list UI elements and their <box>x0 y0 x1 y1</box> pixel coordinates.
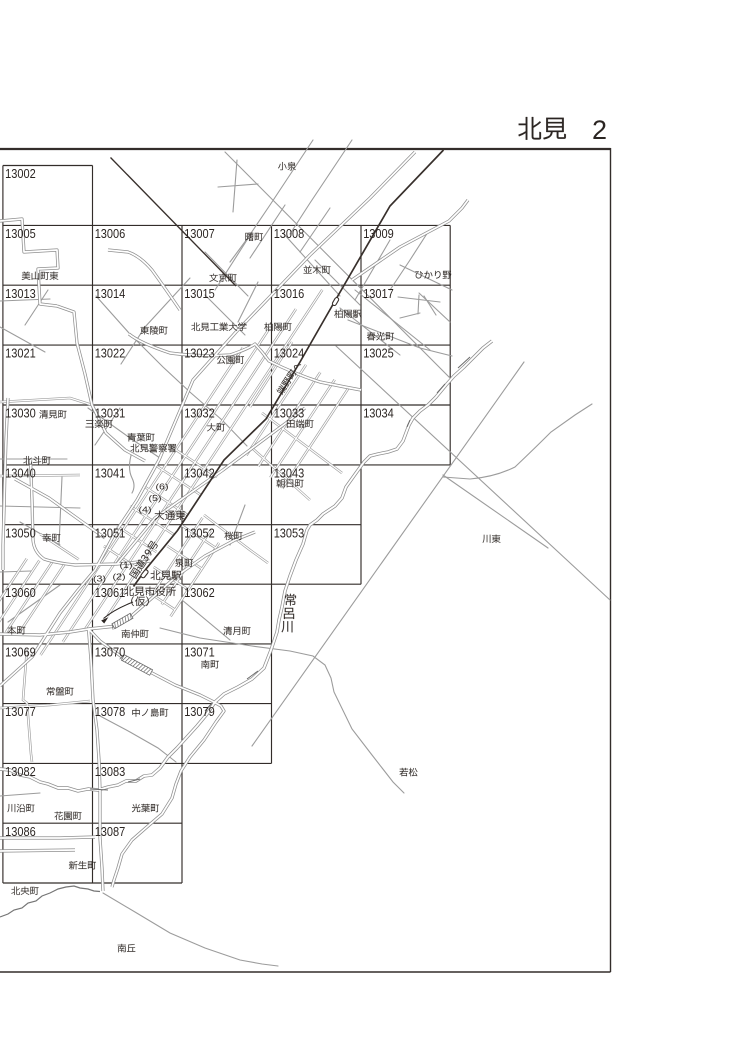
svg-text:13078: 13078 <box>95 704 126 719</box>
svg-text:13069: 13069 <box>5 645 36 660</box>
svg-text:13030: 13030 <box>5 406 36 421</box>
svg-text:13005: 13005 <box>5 226 36 241</box>
svg-text:13007: 13007 <box>184 226 215 241</box>
svg-text:13021: 13021 <box>5 346 36 361</box>
svg-text:13087: 13087 <box>95 824 126 839</box>
svg-text:(4): (4) <box>139 506 152 515</box>
svg-text:13040: 13040 <box>5 466 36 481</box>
svg-text:13034: 13034 <box>363 406 394 421</box>
svg-text:13025: 13025 <box>363 346 394 361</box>
svg-text:13052: 13052 <box>184 525 215 540</box>
svg-text:13070: 13070 <box>95 645 126 660</box>
svg-text:13017: 13017 <box>363 286 394 301</box>
svg-text:13053: 13053 <box>274 525 305 540</box>
svg-text:13023: 13023 <box>184 346 215 361</box>
svg-text:13062: 13062 <box>184 585 215 600</box>
svg-text:13032: 13032 <box>184 406 215 421</box>
svg-text:13022: 13022 <box>95 346 126 361</box>
svg-text:(6): (6) <box>156 483 169 492</box>
svg-text:13033: 13033 <box>274 406 305 421</box>
svg-text:2: 2 <box>592 115 607 145</box>
svg-text:(5): (5) <box>149 494 162 503</box>
svg-text:13014: 13014 <box>95 286 126 301</box>
svg-text:13024: 13024 <box>274 346 305 361</box>
svg-text:13083: 13083 <box>95 764 126 779</box>
svg-text:13041: 13041 <box>95 466 126 481</box>
svg-text:13016: 13016 <box>274 286 305 301</box>
svg-text:13050: 13050 <box>5 525 36 540</box>
svg-text:13031: 13031 <box>95 406 126 421</box>
svg-text:13013: 13013 <box>5 286 36 301</box>
svg-text:13002: 13002 <box>5 166 36 181</box>
svg-text:13015: 13015 <box>184 286 215 301</box>
svg-text:13086: 13086 <box>5 824 36 839</box>
svg-text:13051: 13051 <box>95 525 126 540</box>
svg-text:13082: 13082 <box>5 764 36 779</box>
svg-text:(2): (2) <box>113 572 126 581</box>
svg-text:13071: 13071 <box>184 645 215 660</box>
svg-text:13060: 13060 <box>5 585 36 600</box>
svg-text:13008: 13008 <box>274 226 305 241</box>
svg-text:13079: 13079 <box>184 704 215 719</box>
svg-text:13009: 13009 <box>363 226 394 241</box>
svg-text:(3): (3) <box>93 574 106 583</box>
svg-text:13043: 13043 <box>274 466 305 481</box>
svg-text:13061: 13061 <box>95 585 126 600</box>
svg-text:13077: 13077 <box>5 704 36 719</box>
svg-text:13042: 13042 <box>184 466 215 481</box>
svg-text:13006: 13006 <box>95 226 126 241</box>
svg-text:(1): (1) <box>120 561 133 570</box>
